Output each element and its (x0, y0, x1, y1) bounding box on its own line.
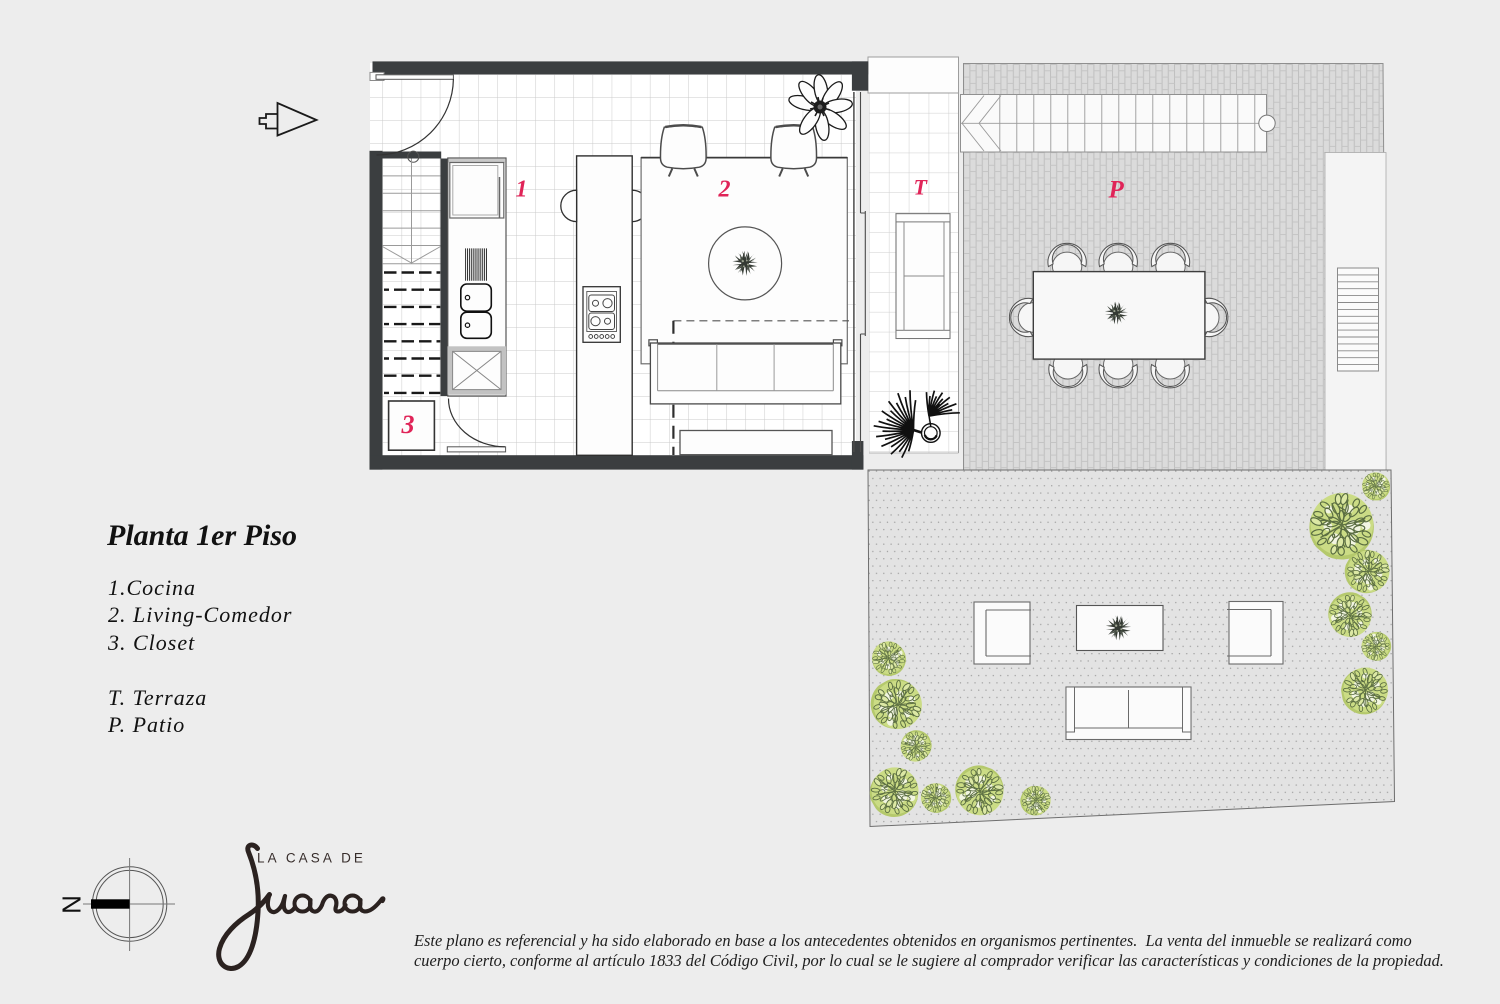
svg-text:T: T (914, 175, 929, 200)
svg-text:1: 1 (516, 177, 528, 203)
svg-text:3: 3 (401, 410, 415, 439)
svg-text:P: P (1108, 177, 1125, 204)
svg-text:2: 2 (718, 177, 731, 203)
svg-text:LA CASA DE: LA CASA DE (257, 851, 366, 866)
svg-text:N: N (57, 895, 87, 914)
